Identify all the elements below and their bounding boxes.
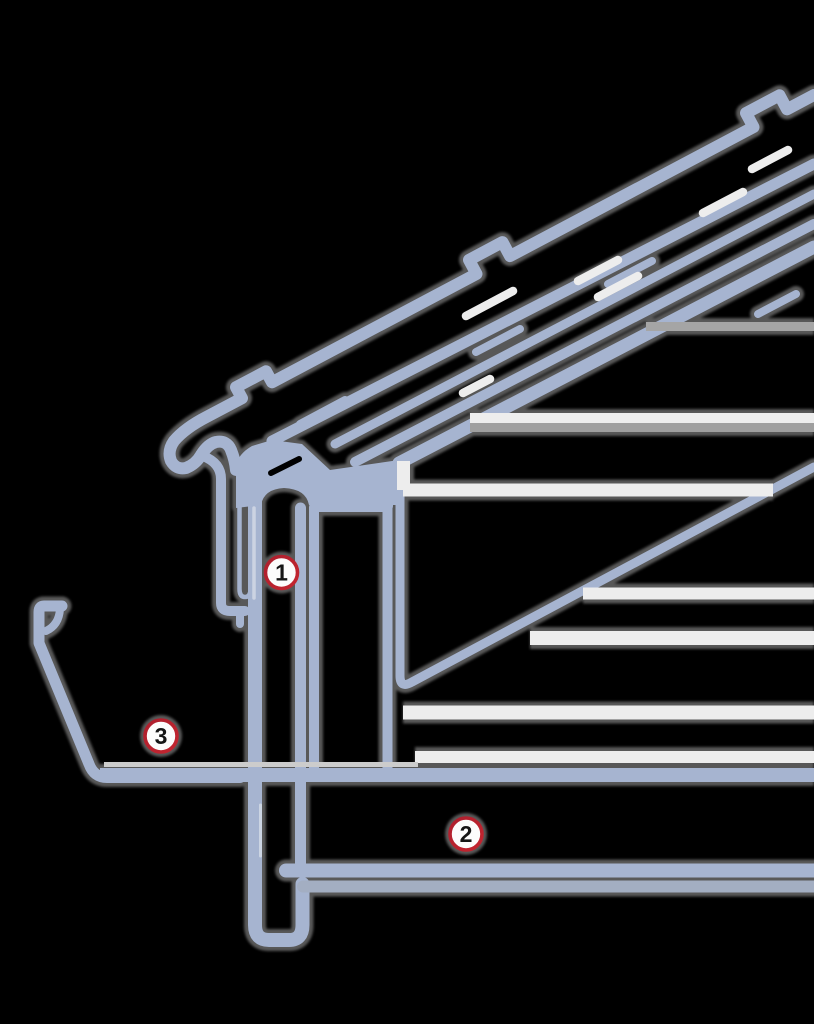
svg-text:2: 2	[460, 821, 473, 847]
svg-text:3: 3	[155, 723, 168, 749]
svg-text:1: 1	[275, 560, 288, 586]
